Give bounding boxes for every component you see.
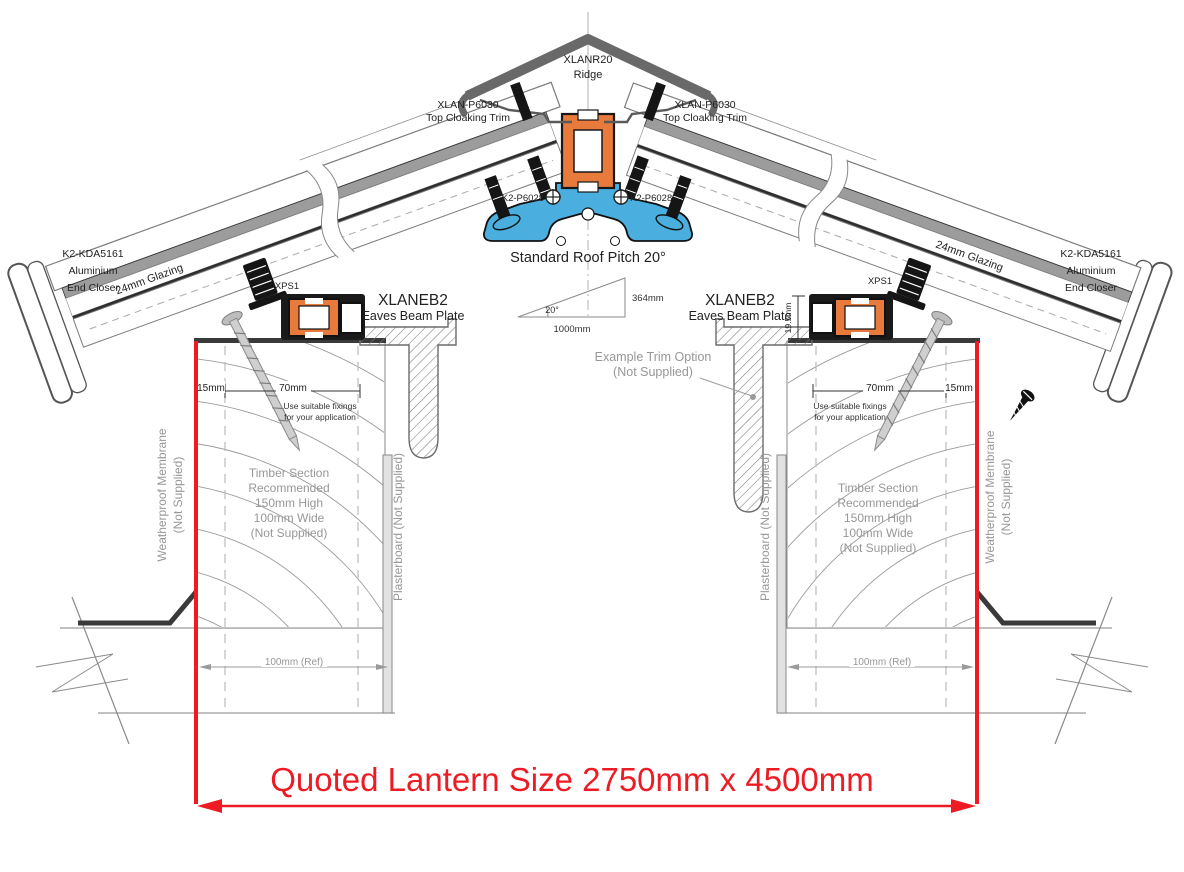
right-membrane-label-1: Weatherproof Membrane (983, 430, 997, 564)
right-end-closer-name: End Closer (1065, 282, 1117, 294)
right-eaves-beam-name: Eaves Beam Plate (689, 309, 792, 323)
right-xps1-label: XPS1 (868, 276, 892, 287)
left-membrane-line (78, 592, 196, 623)
left-eaves-beam-name: Eaves Beam Plate (362, 309, 465, 323)
svg-text:Timber Section: Timber Section (249, 466, 329, 480)
break-symbol-left (36, 597, 129, 744)
roof-lantern-section-page: 24mm Glazing 24mm Glazing (0, 0, 1184, 872)
left-top-cloaking-code: XLAN-P6030 (437, 99, 498, 111)
right-fixing-note-2: for your application (814, 412, 886, 422)
svg-text:100mm Wide: 100mm Wide (254, 511, 325, 525)
svg-text:Recommended: Recommended (837, 496, 918, 510)
svg-text:150mm High: 150mm High (255, 496, 323, 510)
left-plasterboard-label: Plasterboard (Not Supplied) (391, 453, 405, 601)
right-edge-dim-label: 15mm (945, 383, 973, 394)
svg-text:100mm Wide: 100mm Wide (843, 526, 914, 540)
pitch-title: Standard Roof Pitch 20° (510, 250, 666, 266)
left-end-closer-code: K2-KDA5161 (62, 248, 123, 260)
lantern-section-drawing: 24mm Glazing 24mm Glazing (0, 0, 1184, 872)
left-fixing-note-1: Use suitable fixings (283, 401, 356, 411)
svg-text:Timber Section: Timber Section (838, 481, 918, 495)
right-end-closer-code: K2-KDA5161 (1060, 248, 1121, 260)
svg-text:Recommended: Recommended (248, 481, 329, 495)
left-eaves-beam-code: XLANEB2 (378, 292, 448, 309)
svg-text:(Not Supplied): (Not Supplied) (251, 526, 328, 540)
right-eaves-beam-code: XLANEB2 (705, 292, 775, 309)
trim-option-label-1: Example Trim Option (595, 350, 712, 364)
right-top-cloaking-name: Top Cloaking Trim (663, 112, 747, 124)
left-membrane-label-2: (Not Supplied) (171, 457, 185, 534)
screw-icon (1004, 387, 1037, 425)
right-membrane-line (977, 592, 1096, 623)
trim-option-label-2: (Not Supplied) (613, 365, 693, 379)
right-end-closer-material: Aluminium (1066, 265, 1115, 277)
right-fixing-note-1: Use suitable fixings (813, 401, 886, 411)
right-plasterboard-label: Plasterboard (Not Supplied) (758, 453, 772, 601)
ridge-code-label: XLANR20 (564, 54, 613, 66)
right-ridge-bracket-label: K2-P6028 (630, 193, 672, 204)
pitch-rise-label: 364mm (632, 293, 664, 304)
left-ref-dim-label: 100mm (Ref) (265, 657, 323, 668)
right-fixing-zone-dim-label: 70mm (866, 383, 894, 394)
right-ref-dim-label: 100mm (Ref) (853, 657, 911, 668)
right-top-cloaking-code: XLAN-P6030 (674, 99, 735, 111)
ceiling-lines (60, 628, 1112, 713)
ridge-name-label: Ridge (574, 69, 603, 81)
quoted-size-label: Quoted Lantern Size 2750mm x 4500mm (270, 761, 874, 798)
pitch-run-label: 1000mm (554, 324, 591, 335)
left-fixing-note-2: for your application (284, 412, 356, 422)
left-xps1-label: XPS1 (275, 281, 299, 292)
left-fixing-zone-dim-label: 70mm (279, 383, 307, 394)
left-membrane-label-1: Weatherproof Membrane (155, 428, 169, 562)
break-symbol-right (1055, 597, 1148, 744)
plate-height-dim-label: 19.5mm (783, 303, 793, 334)
left-top-cloaking-name: Top Cloaking Trim (426, 112, 510, 124)
right-timber-note: Timber Section Recommended 150mm High 10… (837, 481, 918, 555)
pitch-triangle (518, 278, 625, 317)
left-end-closer-material: Aluminium (68, 265, 117, 277)
right-membrane-label-2: (Not Supplied) (999, 459, 1013, 536)
left-ridge-bracket-label: K2-P6028 (502, 193, 544, 204)
left-timber-note: Timber Section Recommended 150mm High 10… (248, 466, 329, 540)
svg-text:(Not Supplied): (Not Supplied) (840, 541, 917, 555)
left-edge-dim-label: 15mm (197, 383, 225, 394)
svg-text:150mm High: 150mm High (844, 511, 912, 525)
left-end-closer-name: End Closer (67, 282, 119, 294)
pitch-angle-label: 20° (545, 305, 559, 315)
right-plasterboard-strip (777, 455, 786, 713)
